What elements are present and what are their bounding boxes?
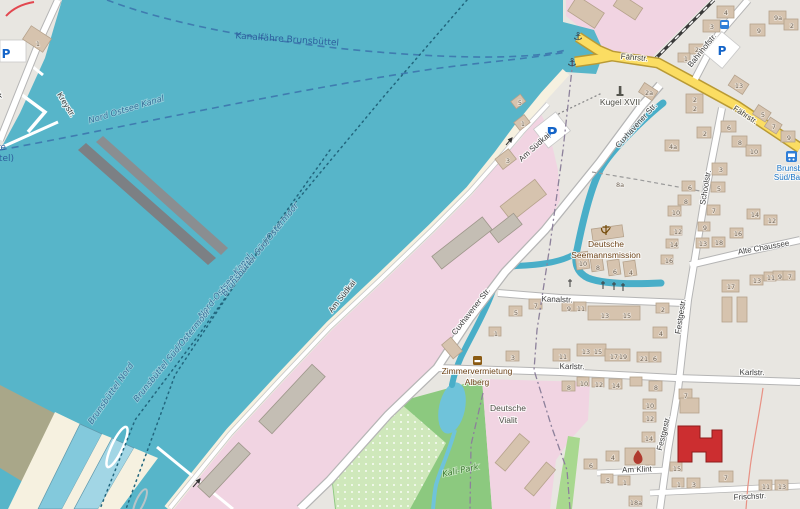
svg-text:11: 11 [767, 274, 775, 282]
svg-text:5: 5 [606, 477, 610, 485]
svg-text:10: 10 [672, 209, 680, 217]
svg-text:3: 3 [719, 166, 723, 174]
poi-vialit-2: Vialit [499, 415, 518, 425]
svg-text:7: 7 [534, 302, 538, 310]
svg-text:2: 2 [695, 46, 699, 54]
svg-text:6: 6 [727, 124, 731, 132]
svg-text:4: 4 [629, 269, 633, 277]
svg-text:7: 7 [684, 392, 688, 400]
svg-text:11: 11 [762, 483, 770, 491]
svg-text:4: 4 [724, 9, 728, 17]
svg-text:4a: 4a [669, 143, 677, 151]
svg-text:7: 7 [712, 207, 716, 215]
svg-text:14: 14 [670, 241, 678, 249]
svg-text:2: 2 [693, 105, 697, 113]
svg-text:9a: 9a [774, 14, 782, 22]
svg-text:8: 8 [738, 139, 742, 147]
svg-text:1: 1 [521, 120, 525, 128]
svg-text:7: 7 [724, 474, 728, 482]
ferry-fragment-1: (Kanalfähre [0, 143, 6, 153]
svg-text:2: 2 [661, 306, 665, 314]
svg-text:11: 11 [559, 353, 567, 361]
svg-text:15: 15 [623, 312, 631, 320]
svg-text:3: 3 [710, 23, 714, 31]
svg-text:1: 1 [623, 479, 627, 487]
hotel-icon [473, 356, 482, 365]
street-label-kanalstr: Kanalstr. [541, 294, 572, 304]
svg-text:4: 4 [659, 330, 663, 338]
svg-text:6: 6 [589, 462, 593, 470]
svg-text:8: 8 [654, 384, 658, 392]
poi-seemannsmission-1: Deutsche [588, 239, 624, 249]
svg-text:14: 14 [612, 382, 620, 390]
svg-text:1: 1 [684, 55, 688, 63]
svg-text:3: 3 [511, 354, 515, 362]
svg-text:18a: 18a [630, 499, 642, 507]
svg-text:9: 9 [787, 134, 791, 142]
svg-text:9: 9 [567, 305, 571, 313]
svg-text:11: 11 [577, 305, 585, 313]
poi-zimmervermietung-1: Zimmervermietung [442, 366, 513, 376]
svg-text:9: 9 [757, 27, 761, 35]
svg-text:1: 1 [36, 40, 40, 48]
svg-text:2: 2 [693, 96, 697, 104]
svg-text:⚓: ⚓ [567, 56, 577, 69]
svg-text:12: 12 [768, 217, 776, 225]
svg-text:8: 8 [567, 384, 571, 392]
bus-stop-label-2: Süd/Bahnhof [774, 173, 800, 182]
svg-text:9: 9 [703, 224, 707, 232]
svg-text:10: 10 [646, 402, 654, 410]
poi-zimmervermietung-2: Alberg [465, 377, 490, 387]
svg-text:4: 4 [611, 454, 615, 462]
bus-stop-label-1: Brunsbüttel [777, 164, 800, 173]
map-canvas[interactable]: ⚓ ⚓ P P P Kreystr. Kreystr. Fährstr. [0, 0, 800, 509]
svg-text:13: 13 [778, 483, 786, 491]
svg-text:19: 19 [619, 353, 627, 361]
svg-text:7: 7 [772, 123, 776, 131]
svg-text:21: 21 [640, 355, 648, 363]
svg-text:1: 1 [494, 330, 498, 338]
poi-seemannsmission-2: Seemannsmission [571, 250, 641, 260]
svg-text:9: 9 [778, 273, 782, 281]
svg-text:13: 13 [699, 240, 707, 248]
poi-kugel-xvii: Kugel XVII [600, 97, 640, 107]
street-label-karlstr: Karlstr. [560, 362, 585, 371]
svg-text:3: 3 [506, 157, 510, 165]
svg-text:15: 15 [594, 348, 602, 356]
bus-stop-icon [720, 20, 729, 29]
svg-text:15: 15 [673, 465, 681, 473]
svg-text:2: 2 [790, 22, 794, 30]
svg-text:13: 13 [601, 312, 609, 320]
svg-text:3: 3 [692, 481, 696, 489]
svg-text:2a: 2a [645, 89, 653, 97]
svg-text:13: 13 [582, 348, 590, 356]
svg-text:10: 10 [750, 148, 758, 156]
svg-text:6: 6 [613, 268, 617, 276]
svg-text:8: 8 [596, 264, 600, 272]
svg-text:1: 1 [677, 481, 681, 489]
ferry-fragment-2: Brunsbüttel) [0, 154, 14, 164]
street-label-frischstr: Frischstr. [733, 491, 766, 502]
svg-text:10: 10 [580, 380, 588, 388]
street-label-am-klint: Am Klint [622, 464, 653, 474]
svg-text:5: 5 [717, 185, 721, 193]
svg-text:16: 16 [665, 257, 673, 265]
svg-text:6: 6 [688, 184, 692, 192]
svg-text:13: 13 [735, 82, 743, 90]
svg-text:13: 13 [753, 277, 761, 285]
street-label-karlstr-2: Karlstr. [740, 368, 765, 377]
svg-text:18: 18 [715, 239, 723, 247]
parking-icon: P [2, 47, 11, 61]
svg-text:16: 16 [734, 230, 742, 238]
svg-text:5: 5 [514, 309, 518, 317]
svg-text:8a: 8a [616, 181, 624, 189]
svg-text:14: 14 [645, 435, 653, 443]
svg-text:5: 5 [518, 99, 522, 107]
svg-text:14: 14 [751, 211, 759, 219]
svg-text:17: 17 [610, 353, 618, 361]
svg-text:8: 8 [684, 198, 688, 206]
svg-text:5: 5 [761, 111, 765, 119]
svg-text:12: 12 [674, 228, 682, 236]
svg-text:7: 7 [788, 273, 792, 281]
svg-text:12: 12 [646, 415, 654, 423]
svg-text:12: 12 [595, 381, 603, 389]
svg-text:2: 2 [703, 130, 707, 138]
bus-stop-icon [786, 151, 797, 162]
svg-text:⚓: ⚓ [573, 30, 583, 43]
svg-text:10: 10 [579, 260, 587, 268]
poi-vialit-1: Deutsche [490, 403, 526, 413]
svg-text:6: 6 [653, 355, 657, 363]
svg-text:17: 17 [727, 283, 735, 291]
parking-icon: P [718, 44, 727, 58]
